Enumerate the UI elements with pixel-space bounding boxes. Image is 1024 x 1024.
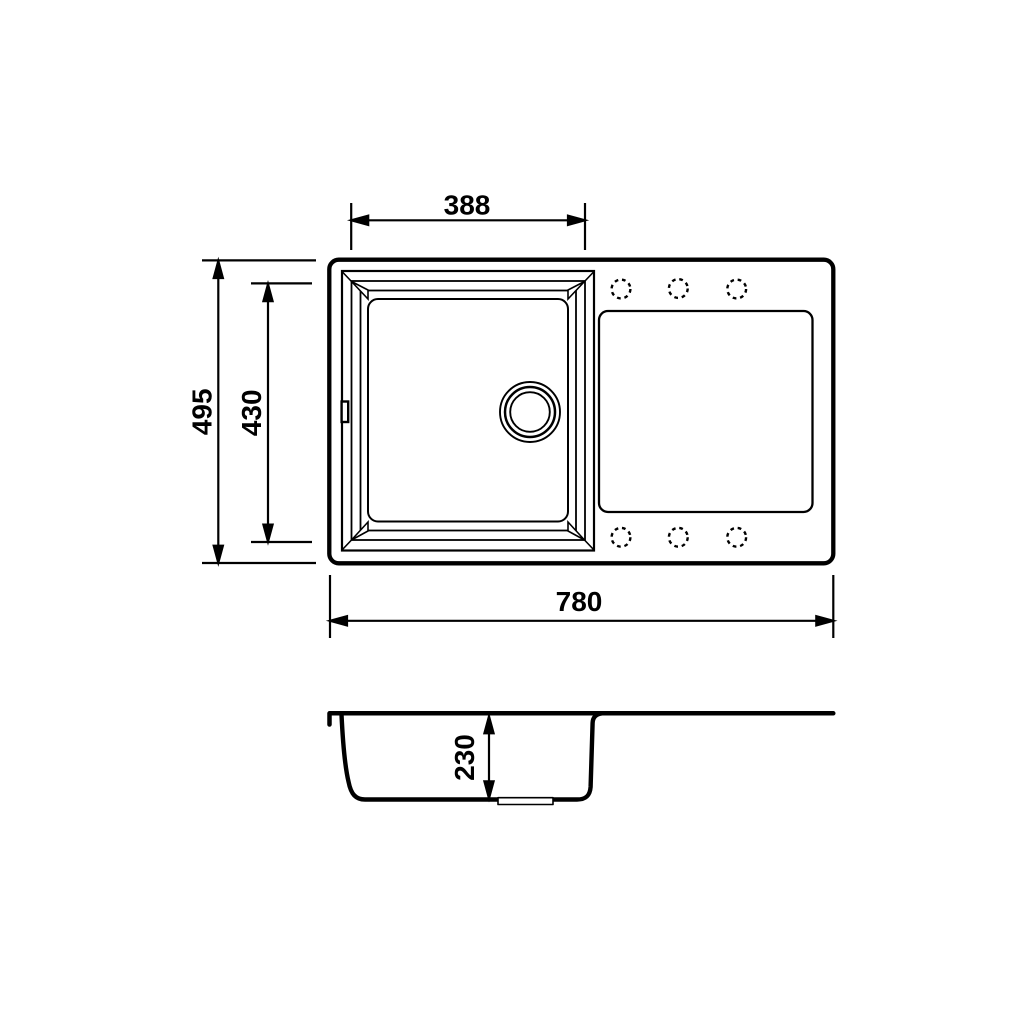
- arrowhead-right: [568, 216, 585, 225]
- top-view: [329, 260, 833, 564]
- arrowhead-up: [263, 284, 272, 301]
- rim-profile: [330, 713, 834, 724]
- arrowhead-up: [484, 716, 493, 733]
- dimension-label: 495: [187, 388, 218, 435]
- arrowhead-down: [484, 781, 493, 798]
- arrowhead-left: [330, 616, 347, 625]
- dimension-bowl-width: 388: [351, 190, 585, 251]
- arrowhead-right: [816, 616, 833, 625]
- dimension-label: 430: [236, 389, 267, 436]
- drain-recess: [498, 798, 553, 805]
- arrowhead-left: [351, 216, 368, 225]
- arrowhead-up: [214, 261, 223, 278]
- arrowhead-down: [263, 525, 272, 542]
- arrowhead-down: [214, 546, 223, 563]
- dimension-bowl-height: 230: [449, 716, 494, 798]
- drawing-canvas: 388 495 430 780: [0, 0, 1024, 1024]
- section-view: [330, 713, 834, 804]
- dimension-label: 780: [556, 586, 603, 617]
- dimension-label: 230: [449, 734, 480, 781]
- sink-outline: [329, 260, 833, 564]
- dimension-overall-width: 780: [330, 575, 833, 638]
- dimension-bowl-depth: 430: [236, 283, 312, 542]
- dimension-label: 388: [444, 190, 491, 221]
- bowl-profile-right: [552, 713, 603, 799]
- sink-technical-drawing: 388 495 430 780: [0, 0, 1024, 1024]
- overflow-slot: [342, 402, 349, 423]
